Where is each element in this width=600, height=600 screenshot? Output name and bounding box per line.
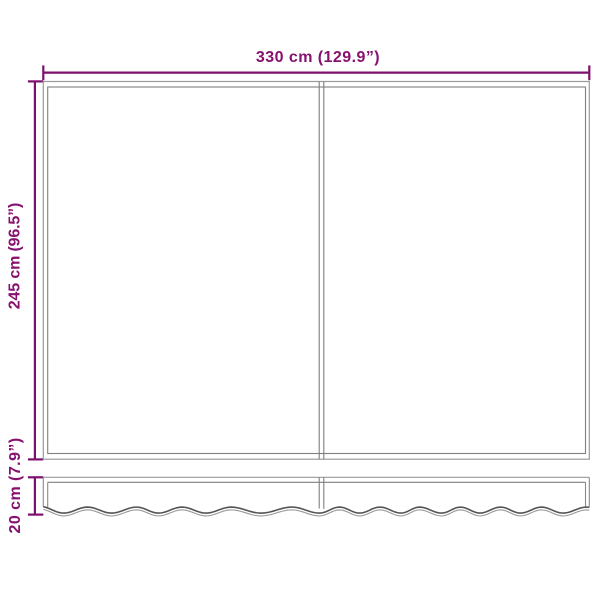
svg-text:20 cm (7.9”): 20 cm (7.9”) — [7, 437, 24, 533]
svg-text:330 cm (129.9”): 330 cm (129.9”) — [256, 49, 380, 66]
svg-text:245 cm (96.5”): 245 cm (96.5”) — [7, 203, 24, 309]
